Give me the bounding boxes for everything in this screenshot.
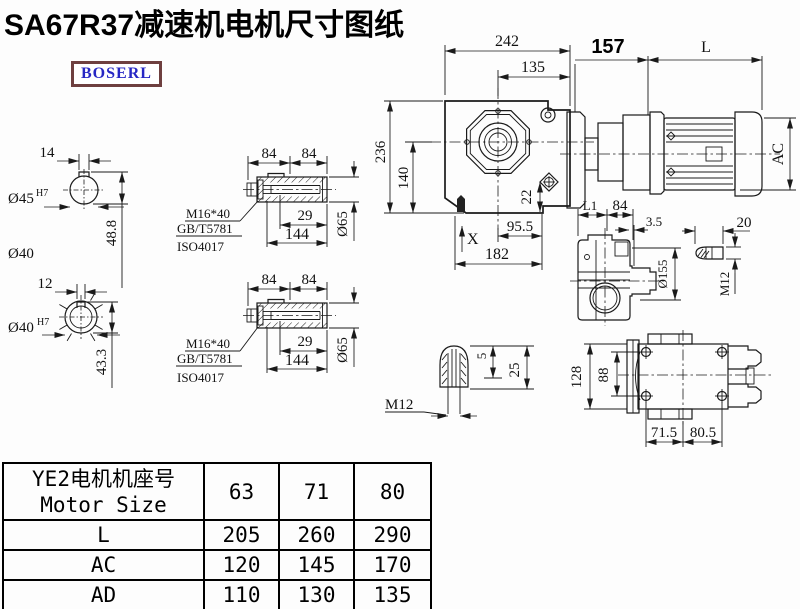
table-cell: 130 [279,580,354,609]
dim-key-width-12: 12 [38,276,53,292]
dim-bore-40: Ø40 [8,320,34,336]
table-header-motor-size: YE2电机机座号 Motor Size [3,463,204,520]
dim-shaft2-84b: 84 [302,272,318,288]
table-cell: 120 [204,550,279,580]
dim-80-5: 80.5 [690,425,716,441]
dim-shaft1-29: 29 [298,208,313,224]
label-shaft2-bolt: M16*40 [186,336,230,351]
dim-L1: L1 [583,198,597,213]
dim-25: 25 [507,363,523,378]
dim-88: 88 [596,368,612,383]
side-view: L1 84 3.5 Ø155 20 [570,198,752,326]
dim-140: 140 [396,167,412,190]
dim-shaft1-144: 144 [285,226,309,243]
dim-95-5: 95.5 [507,219,533,235]
table-row-label-L: L [3,520,204,550]
table-cell: 110 [204,580,279,609]
hollow-shaft-view-2: 84 84 M16*40 GB/T5781 ISO4017 29 144 Ø65 [176,272,359,385]
drawing-sheet: 14 Ø45 H7 48.8 Ø40 [0,0,800,609]
table-cell: 260 [279,520,354,550]
dim-236: 236 [373,140,389,163]
dim-182: 182 [485,246,509,263]
dim-135: 135 [521,59,545,76]
dim-71-5: 71.5 [651,425,677,441]
table-cell: 290 [354,520,431,550]
table-row-label-AC: AC [3,550,204,580]
hollow-shaft-view-1: 84 84 M16*40 GB/T5781 ISO4017 29 144 Ø65 [176,146,359,254]
table-cell: 170 [354,550,431,580]
table-row: AC 120 145 170 [3,550,431,580]
table-row: AD 110 130 135 [3,580,431,609]
bottom-view: 128 88 71.5 80.5 [569,330,772,447]
thread-detail-view: M12 5 25 [385,346,534,416]
table-cell: 135 [354,580,431,609]
dim-depth-43-3: 43.3 [94,349,110,375]
motor-size-table: YE2电机机座号 Motor Size 63 71 80 L 205 260 2… [2,462,432,609]
dim-shaft1-84a: 84 [262,146,278,162]
brand-logo: BOSERL [71,61,162,87]
dim-22: 22 [519,190,535,205]
dim-155: Ø155 [655,260,670,289]
dim-bore-45-fit: H7 [36,188,48,199]
dim-shaft2-29: 29 [298,334,313,350]
dim-242: 242 [495,33,519,50]
table-cell: 145 [279,550,354,580]
label-shaft1-std2: ISO4017 [177,239,224,254]
label-shaft2-std1: GB/T5781 [177,351,233,366]
dim-key-width-14: 14 [40,145,56,161]
dim-bore-45: Ø45 [8,191,34,207]
front-assembly-view: 242 135 157 L 236 140 22 [373,33,796,270]
dim-shaft2-144: 144 [285,352,309,369]
bore-section-45-view: 14 Ø45 H7 48.8 Ø40 [8,145,128,288]
dim-3-5: 3.5 [646,214,662,229]
table-header-en: Motor Size [4,492,203,518]
dim-bore-40-fit: H7 [37,317,49,328]
dim-side-84: 84 [613,198,629,214]
dim-side-M12: M12 [717,272,732,297]
dim-shaft2-84a: 84 [262,272,278,288]
dim-depth-48-8: 48.8 [104,220,120,246]
dim-20: 20 [737,215,752,231]
dim-5: 5 [474,353,489,360]
page-title: SA67R37减速机电机尺寸图纸 [4,0,404,44]
label-x-mark: X [467,231,479,248]
table-header-row: YE2电机机座号 Motor Size 63 71 80 [3,463,431,520]
label-shaft1-std1: GB/T5781 [177,221,233,236]
table-header-size-63: 63 [204,463,279,520]
table-header-cn: YE2电机机座号 [4,466,203,492]
table-row: L 205 260 290 [3,520,431,550]
table-header-size-80: 80 [354,463,431,520]
dim-shaft1-dia: Ø65 [335,211,351,237]
bore-section-40-view: 12 Ø40 H7 43.3 [8,276,120,388]
dim-L: L [701,39,711,56]
dim-AC: AC [770,143,787,165]
dim-157: 157 [591,36,624,58]
label-shaft2-std2: ISO4017 [177,370,224,385]
dim-shaft2-dia: Ø65 [335,337,351,363]
dim-128: 128 [569,366,585,389]
dim-outer-40: Ø40 [8,246,34,262]
table-row-label-AD: AD [3,580,204,609]
dim-shaft1-84b: 84 [302,146,318,162]
label-thread-M12: M12 [385,397,413,413]
label-shaft1-bolt: M16*40 [186,206,230,221]
table-cell: 205 [204,520,279,550]
table-header-size-71: 71 [279,463,354,520]
